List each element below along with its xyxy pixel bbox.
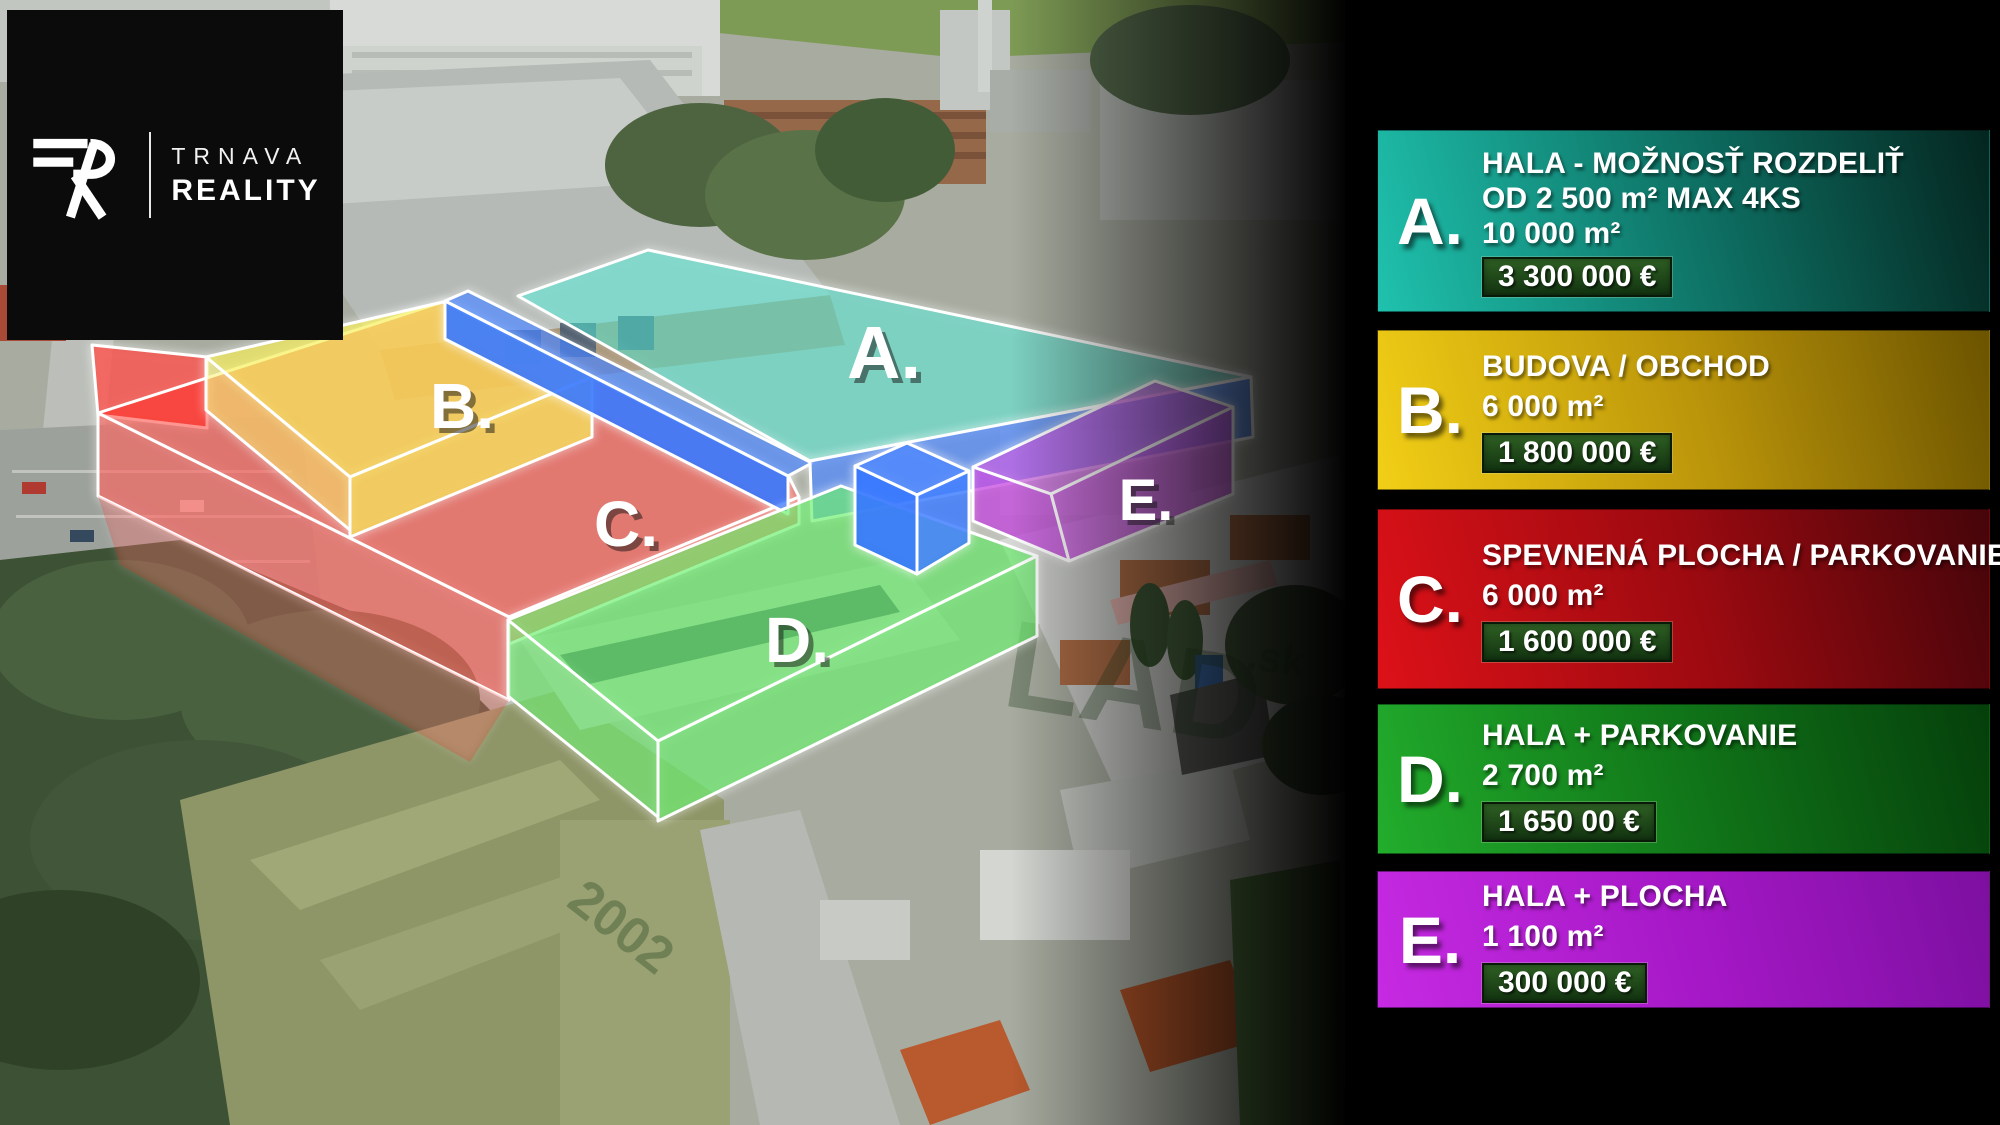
offer-letter-b: B.	[1378, 372, 1482, 448]
offer-title: SPEVNENÁ PLOCHA / PARKOVANIE	[1482, 536, 2000, 576]
offer-card-d: D. HALA + PARKOVANIE 2 700 m² 1 650 00 €	[1377, 704, 1990, 854]
offer-area: 10 000 m²	[1482, 216, 1904, 251]
zone-label-e: E.	[1119, 468, 1174, 533]
logo-divider	[149, 132, 151, 218]
offer-title: BUDOVA / OBCHOD	[1482, 347, 1770, 387]
offer-card-c: C. SPEVNENÁ PLOCHA / PARKOVANIE 6 000 m²…	[1377, 509, 1990, 689]
offer-card-b: B. BUDOVA / OBCHOD 6 000 m² 1 800 000 €	[1377, 330, 1990, 490]
zone-label-c: C.	[594, 488, 658, 560]
logo-wordmark: TRNAVA REALITY	[171, 143, 320, 208]
price-badge-e: 300 000 €	[1482, 963, 1647, 1003]
offer-letter-c: C.	[1378, 561, 1482, 637]
logo-reality: REALITY	[171, 174, 320, 208]
sidebar-fade	[1010, 0, 1350, 1125]
property-offer-graphic: LAD .sk 2002	[0, 0, 2000, 1125]
offer-letter-d: D.	[1378, 741, 1482, 817]
brand-logo: TRNAVA REALITY	[7, 10, 343, 340]
offer-card-a: A. HALA - MOŽNOSŤ ROZDELIŤ OD 2 500 m² M…	[1377, 130, 1990, 312]
offer-detail: OD 2 500 m² MAX 4KS	[1482, 181, 1904, 216]
logo-city: TRNAVA	[171, 143, 320, 170]
offer-area: 1 100 m²	[1482, 917, 1728, 957]
offer-title: HALA + PARKOVANIE	[1482, 716, 1797, 756]
corridor-tower-overlay	[855, 443, 969, 574]
price-badge-a: 3 300 000 €	[1482, 257, 1672, 297]
price-badge-c: 1 600 000 €	[1482, 622, 1672, 662]
price-badge-b: 1 800 000 €	[1482, 433, 1672, 473]
offer-area: 6 000 m²	[1482, 387, 1770, 427]
offer-letter-e: E.	[1378, 902, 1482, 978]
zone-label-b: B.	[430, 370, 494, 442]
offer-area: 2 700 m²	[1482, 756, 1797, 796]
offer-title: HALA + PLOCHA	[1482, 877, 1728, 917]
zone-label-a: A.	[847, 311, 921, 394]
offer-card-e: E. HALA + PLOCHA 1 100 m² 300 000 €	[1377, 871, 1990, 1008]
offer-letter-a: A.	[1378, 183, 1482, 259]
offer-title: HALA - MOŽNOSŤ ROZDELIŤ	[1482, 146, 1904, 181]
offer-area: 6 000 m²	[1482, 576, 2000, 616]
price-badge-d: 1 650 00 €	[1482, 802, 1656, 842]
zone-label-d: D.	[765, 604, 829, 676]
tr-monogram-icon	[29, 127, 129, 223]
